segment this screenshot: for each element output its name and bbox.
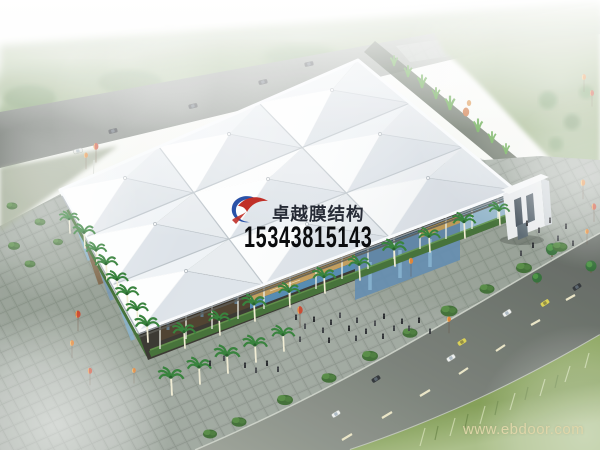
architectural-rendering: 卓越膜结构 15343815143 www.ebdoor.com (0, 0, 600, 450)
watermark-website: www.ebdoor.com (463, 421, 584, 438)
watermark-phone-number: 15343815143 (244, 221, 372, 255)
